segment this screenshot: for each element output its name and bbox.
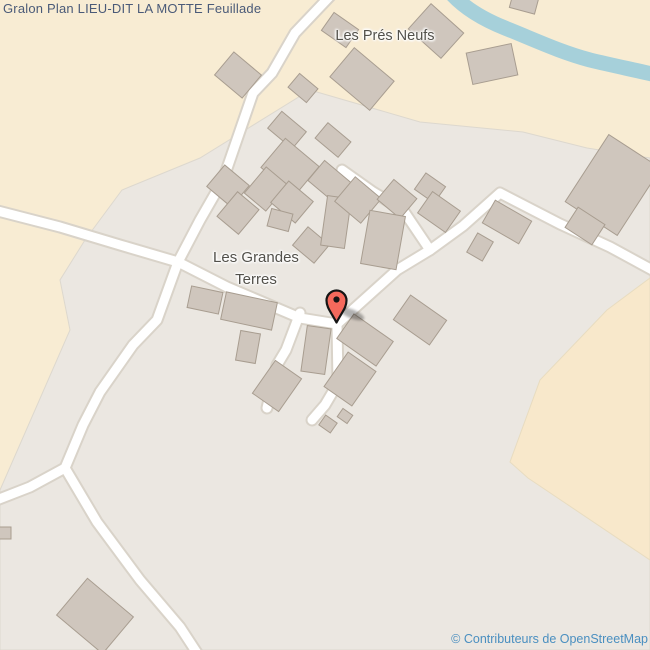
map-canvas[interactable]: Gralon Plan LIEU-DIT LA MOTTE Feuillade … — [0, 0, 650, 650]
building — [0, 527, 11, 539]
place-label-les-pres-neufs: Les Prés Neufs — [305, 28, 465, 44]
osm-attribution-link[interactable]: © Contributeurs de OpenStreetMap — [451, 632, 648, 646]
map-svg — [0, 0, 650, 650]
place-label-line1: Les Grandes — [176, 247, 336, 269]
page-title: Gralon Plan LIEU-DIT LA MOTTE Feuillade — [3, 1, 261, 16]
place-label-les-grandes-terres: Les Grandes Terres — [176, 247, 336, 291]
place-label-line2: Terres — [176, 269, 336, 291]
